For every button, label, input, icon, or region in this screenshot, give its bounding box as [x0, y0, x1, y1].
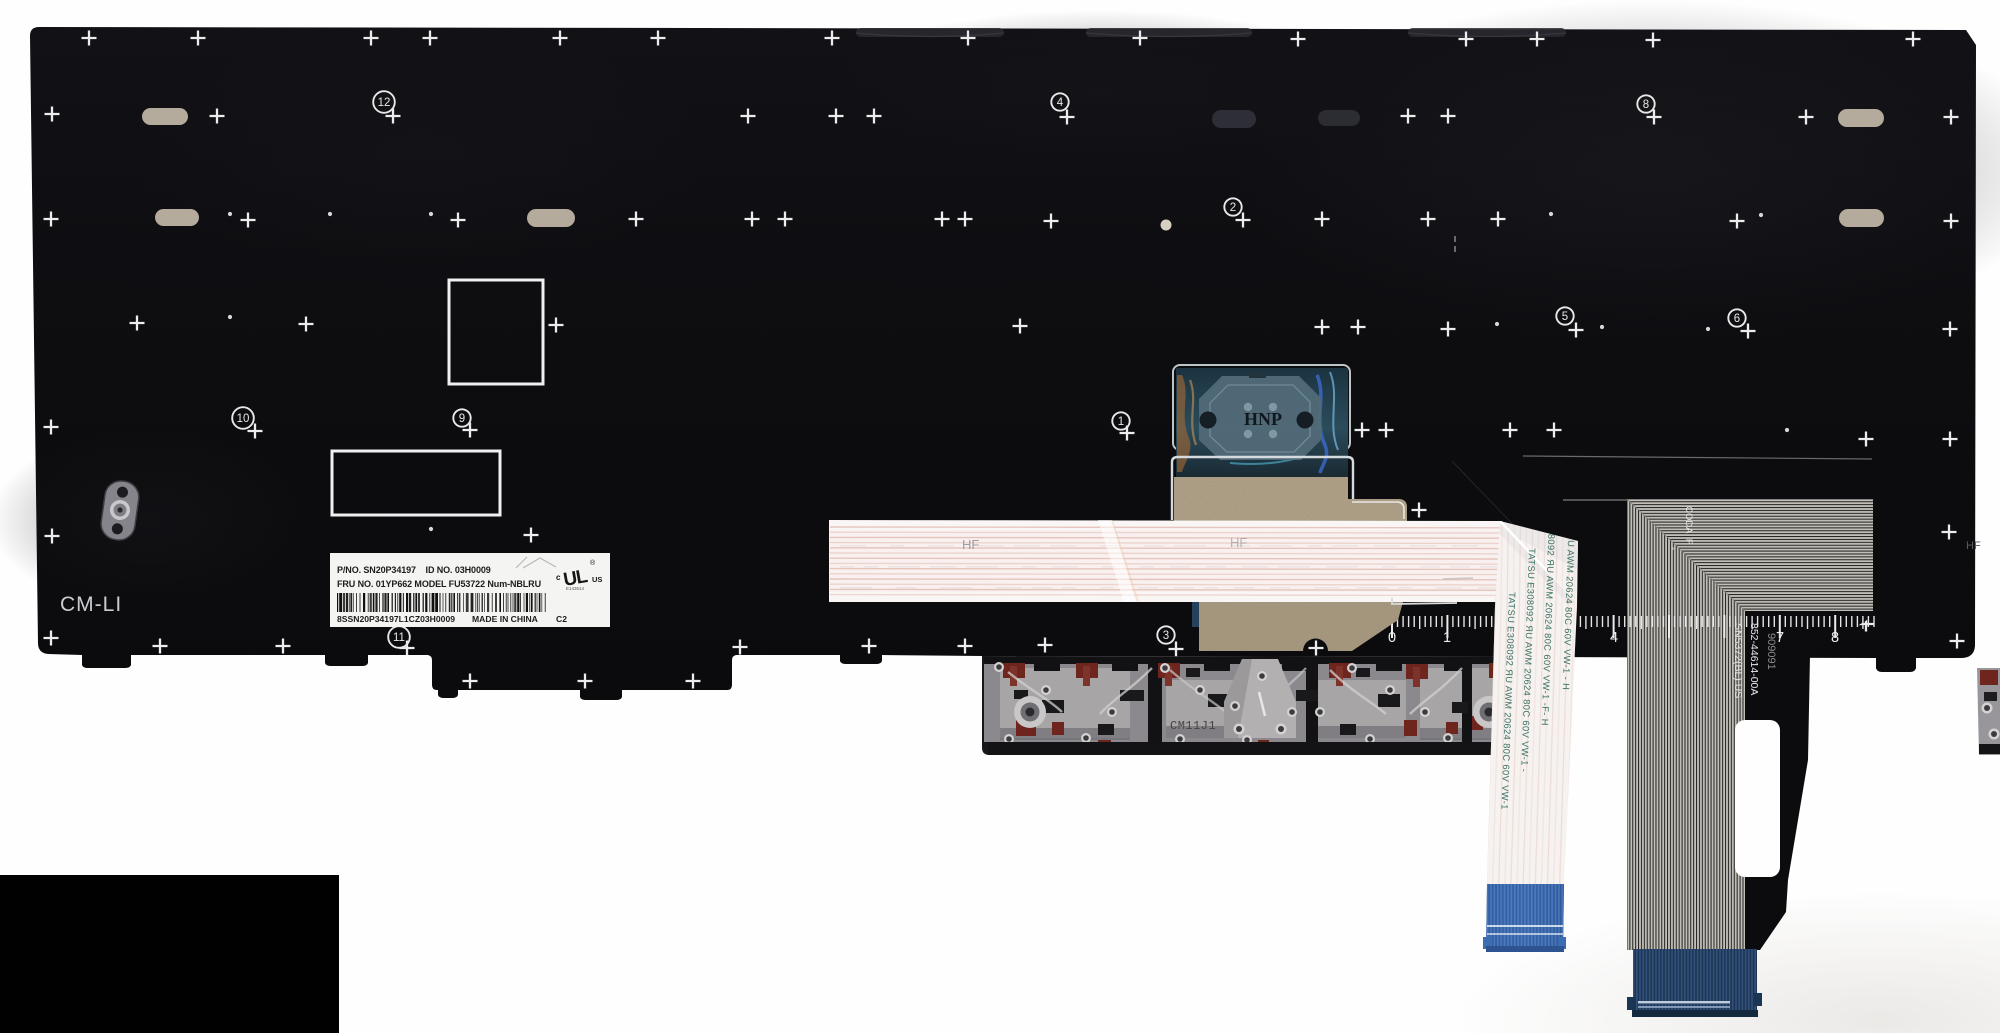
svg-text:CM-LI: CM-LI [60, 593, 122, 616]
svg-text:SN5372(BL) US: SN5372(BL) US [1732, 623, 1744, 698]
svg-text:P/NO. SN20P34197 ID NO. 03H: P/NO. SN20P34197 ID NO. 03H0009 [337, 565, 491, 575]
svg-text:3: 3 [1163, 630, 1169, 642]
svg-text:6: 6 [1734, 313, 1740, 325]
svg-text:HNP: HNP [1244, 409, 1282, 429]
svg-text:0: 0 [1388, 630, 1396, 646]
svg-text:10: 10 [237, 413, 250, 425]
svg-text:8SSN20P34197L1CZ03H0009: 8SSN20P34197L1CZ03H0009 [337, 614, 455, 624]
svg-text:1: 1 [1118, 416, 1124, 428]
svg-text:852-44614-00A: 852-44614-00A [1748, 623, 1760, 695]
svg-text:HF: HF [1966, 540, 1981, 552]
svg-text:c: c [556, 573, 561, 582]
svg-text:MADE IN CHINA: MADE IN CHINA [472, 614, 538, 624]
svg-text:9: 9 [459, 413, 465, 425]
svg-text:C2: C2 [556, 614, 567, 624]
svg-text:CM11J1: CM11J1 [1170, 719, 1216, 733]
svg-text:›: › [1671, 543, 1674, 554]
svg-text:1: 1 [1443, 630, 1451, 646]
svg-text:8: 8 [1831, 630, 1839, 646]
svg-text:®: ® [590, 559, 596, 567]
svg-text:US: US [592, 575, 602, 584]
svg-text:5: 5 [1562, 311, 1568, 323]
svg-text:HF: HF [1230, 535, 1247, 550]
svg-text:11: 11 [393, 632, 405, 644]
svg-text:2: 2 [1230, 202, 1236, 214]
svg-text:4: 4 [1610, 630, 1618, 646]
svg-text:12: 12 [378, 97, 391, 109]
svg-text:8: 8 [1643, 99, 1649, 111]
svg-text:E143614: E143614 [566, 586, 585, 591]
svg-text:HF: HF [962, 537, 979, 552]
svg-text:7: 7 [1776, 630, 1784, 646]
svg-text:CODA F: CODA F [1683, 506, 1694, 545]
svg-text:FRU NO. 01YP662 MODEL FU53722: FRU NO. 01YP662 MODEL FU53722 Num-NBLRU [337, 579, 541, 589]
svg-text:4: 4 [1057, 97, 1064, 109]
